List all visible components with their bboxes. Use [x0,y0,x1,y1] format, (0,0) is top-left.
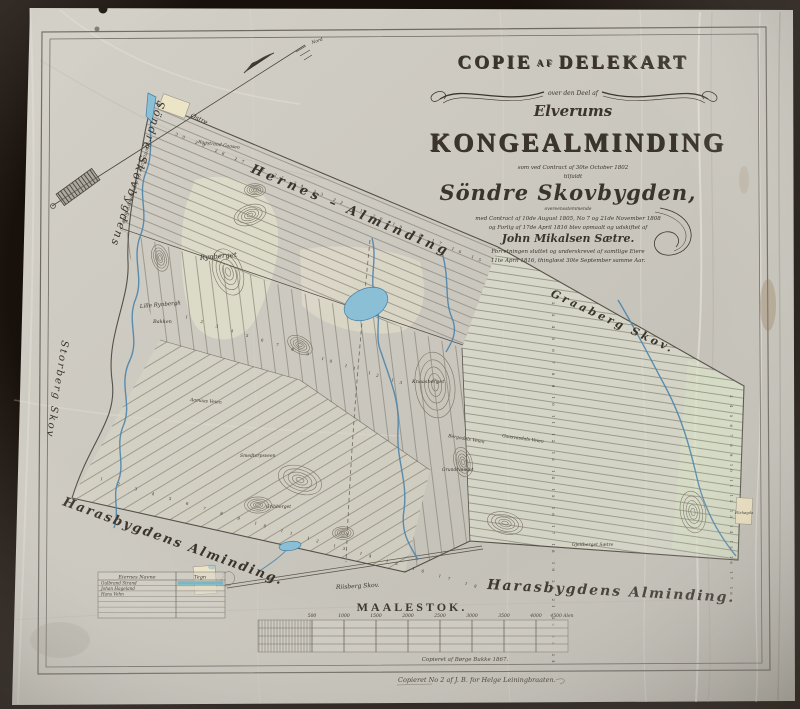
map-photo: 30 29 28 27 26 25 24 23 22 21 20 19 18 1… [0,0,800,709]
vignette [0,0,800,709]
historic-map-svg: 30 29 28 27 26 25 24 23 22 21 20 19 18 1… [0,0,800,709]
